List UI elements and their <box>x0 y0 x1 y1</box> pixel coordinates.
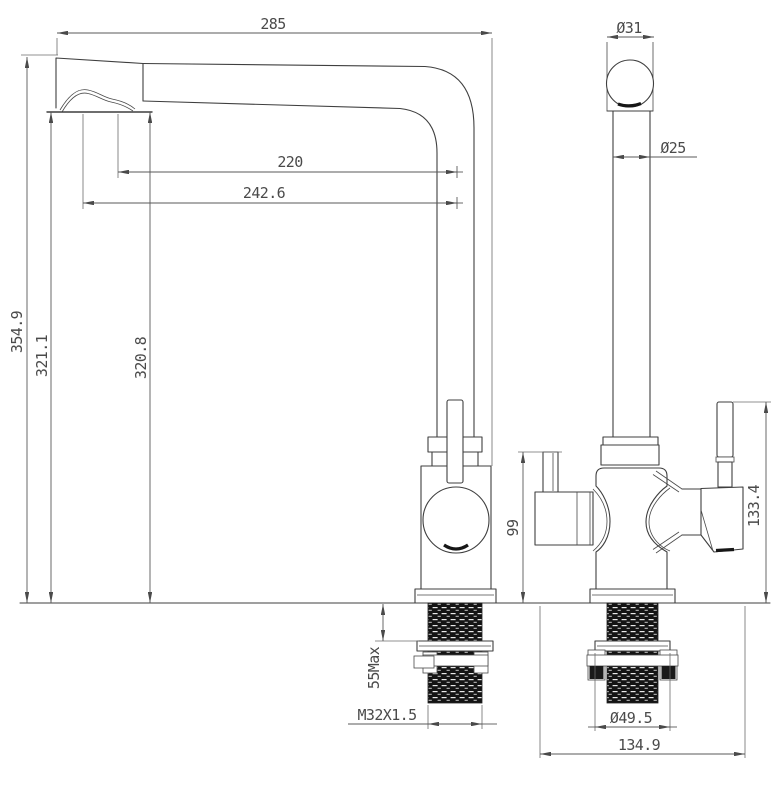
handle-stem <box>717 402 733 457</box>
faucet-technical-drawing: 285 Ø31 Ø25 220 242.6 354.9 321.1 320.8 … <box>0 0 773 800</box>
front-body <box>415 400 496 603</box>
dim-spout-reach-overall: 285 <box>260 15 285 33</box>
dim-body-depth: 134.9 <box>618 736 661 754</box>
side-riser-tube <box>613 111 650 437</box>
side-collar <box>601 437 659 465</box>
dim-spout-height-inner: 320.8 <box>132 336 150 379</box>
side-head-sphere <box>607 60 654 107</box>
side-body <box>590 468 675 603</box>
dim-head-diameter: Ø31 <box>616 19 642 37</box>
dim-overall-height: 354.9 <box>8 310 26 353</box>
side-base-flange <box>590 589 675 603</box>
front-body-boss <box>423 487 489 553</box>
dim-handle-height: 133.4 <box>745 484 763 527</box>
dim-tube-diameter: Ø25 <box>660 139 685 157</box>
dim-spout-height-outer: 321.1 <box>33 334 51 377</box>
dim-spout-reach-inner: 220 <box>277 153 303 171</box>
front-mounting-shank <box>414 603 493 703</box>
dim-filter-lever-height: 99 <box>504 519 522 536</box>
side-mounting-nut <box>587 655 678 666</box>
dim-spout-reach-outer: 242.6 <box>243 184 286 202</box>
front-spout-tube <box>143 64 474 438</box>
side-filter-lever <box>543 452 558 492</box>
side-view <box>535 42 743 703</box>
dim-max-counter-thickness: 55Max <box>365 646 383 689</box>
side-mounting-shank <box>587 603 678 703</box>
drawing-canvas: 285 Ø31 Ø25 220 242.6 354.9 321.1 320.8 … <box>0 0 773 800</box>
handle-body <box>701 487 743 552</box>
dim-shank-thread: M32X1.5 <box>357 706 416 724</box>
front-lever <box>447 400 463 483</box>
side-spout-head <box>607 42 654 111</box>
front-spout-head <box>47 58 152 112</box>
front-clip <box>414 656 434 668</box>
side-filter-outlet <box>535 452 593 545</box>
dim-washer-diameter: Ø49.5 <box>610 709 652 727</box>
front-base-flange <box>415 589 496 603</box>
